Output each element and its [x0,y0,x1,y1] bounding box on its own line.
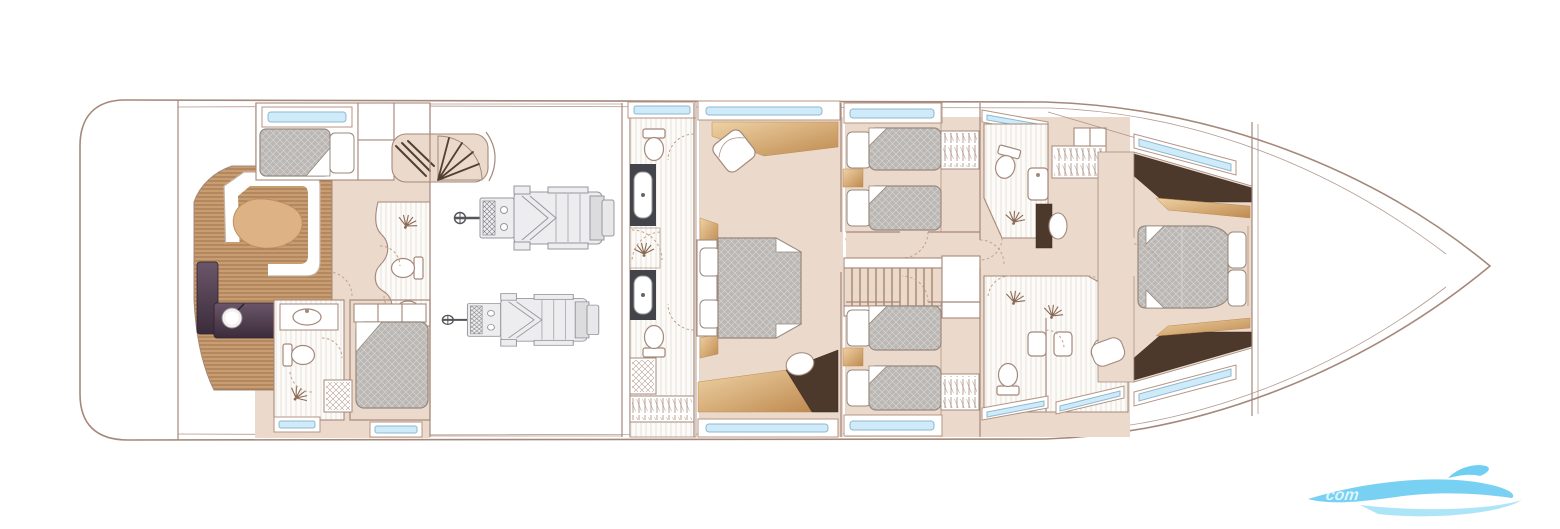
pillow [847,190,871,226]
stair-landing [942,256,980,318]
crew-locker-3 [358,140,394,180]
master-bed-mattress [718,238,801,338]
crew-bed-pillow [330,133,354,173]
toilet-icon [997,364,1019,396]
master-bathroom [628,102,700,437]
nightstand [843,169,863,187]
crew-locker-1 [358,103,394,140]
stool [1049,213,1067,239]
pillow [1228,232,1246,268]
window [634,106,690,114]
pillow [1228,270,1246,306]
watermark-fin [1448,465,1489,478]
crew-cabin-window [268,112,346,122]
window [706,424,828,432]
window [850,109,934,118]
hull-window [279,421,315,428]
shelf [1090,128,1106,146]
watermark-text: com [1325,486,1360,504]
hull-window [375,426,417,433]
pillow [847,370,871,406]
headboard-shelf [354,304,378,322]
pillow [700,300,720,328]
galley-sink-bowl [226,312,239,325]
bedside-panel [700,334,718,358]
toilet-icon [643,129,665,161]
yacht-lower-deck-floor-plan: com [0,0,1560,529]
headboard-shelf [378,304,402,322]
toilet-icon [643,326,665,358]
sink-icon [1054,332,1072,356]
pillow [847,132,871,168]
sink-icon [1028,332,1046,356]
nightstand [843,348,863,366]
window [706,107,822,115]
toilet-icon [392,257,424,279]
headboard-shelf [402,304,426,322]
shelf [1074,128,1090,146]
pillow [847,310,871,346]
crew-cabin [256,103,358,180]
pillow [700,248,720,276]
crew-stairs [392,132,495,182]
watermark-swoosh-tail [1360,500,1522,516]
watermark: com [1308,465,1522,516]
window [850,421,934,430]
sink-icon [1028,168,1048,200]
toilet-icon [283,344,315,366]
